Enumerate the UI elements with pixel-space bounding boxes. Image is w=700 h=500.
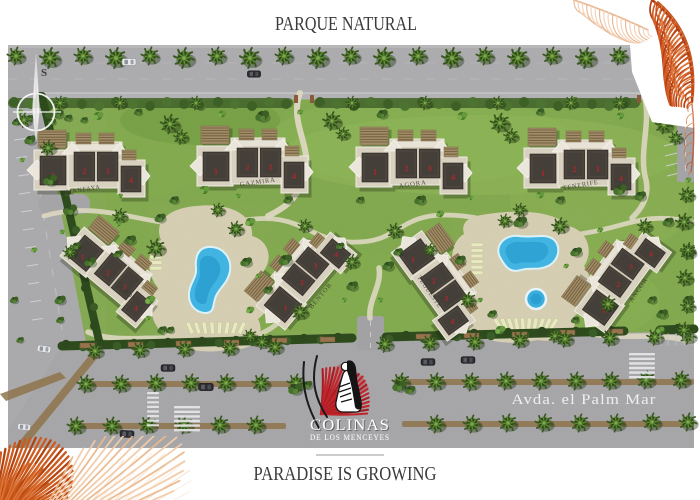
svg-text:2: 2 xyxy=(573,165,577,174)
svg-text:COLINAS: COLINAS xyxy=(310,417,390,434)
svg-text:2: 2 xyxy=(432,277,436,286)
svg-text:3: 3 xyxy=(314,262,318,271)
svg-text:Avda. el Palm Mar: Avda. el Palm Mar xyxy=(512,392,657,408)
svg-text:4: 4 xyxy=(292,172,296,181)
svg-text:1: 1 xyxy=(373,168,377,177)
svg-text:1: 1 xyxy=(214,167,218,176)
svg-text:3: 3 xyxy=(428,164,432,173)
svg-text:2: 2 xyxy=(405,164,409,173)
svg-text:PARADISE IS GROWING: PARADISE IS GROWING xyxy=(254,464,437,485)
svg-text:4: 4 xyxy=(334,250,338,259)
svg-text:2: 2 xyxy=(106,269,110,278)
svg-text:3: 3 xyxy=(596,165,600,174)
svg-text:3: 3 xyxy=(106,167,110,176)
svg-text:1: 1 xyxy=(541,169,545,178)
svg-text:4: 4 xyxy=(129,176,133,185)
svg-text:PARQUE NATURAL: PARQUE NATURAL xyxy=(275,13,417,35)
svg-text:3: 3 xyxy=(629,263,633,272)
svg-text:2: 2 xyxy=(300,278,304,287)
svg-text:4: 4 xyxy=(451,173,455,182)
svg-text:2: 2 xyxy=(616,280,620,289)
svg-text:3: 3 xyxy=(269,163,273,172)
svg-text:S: S xyxy=(41,67,47,79)
svg-text:3: 3 xyxy=(444,294,448,303)
svg-text:1: 1 xyxy=(411,255,415,264)
svg-text:2: 2 xyxy=(83,167,87,176)
svg-text:4: 4 xyxy=(649,250,653,259)
svg-text:1: 1 xyxy=(81,253,85,262)
svg-text:4: 4 xyxy=(619,174,623,183)
svg-text:DE LOS MENCEYES: DE LOS MENCEYES xyxy=(310,433,390,442)
svg-text:2: 2 xyxy=(246,163,250,172)
svg-text:4: 4 xyxy=(451,317,455,326)
svg-text:1: 1 xyxy=(284,303,288,312)
